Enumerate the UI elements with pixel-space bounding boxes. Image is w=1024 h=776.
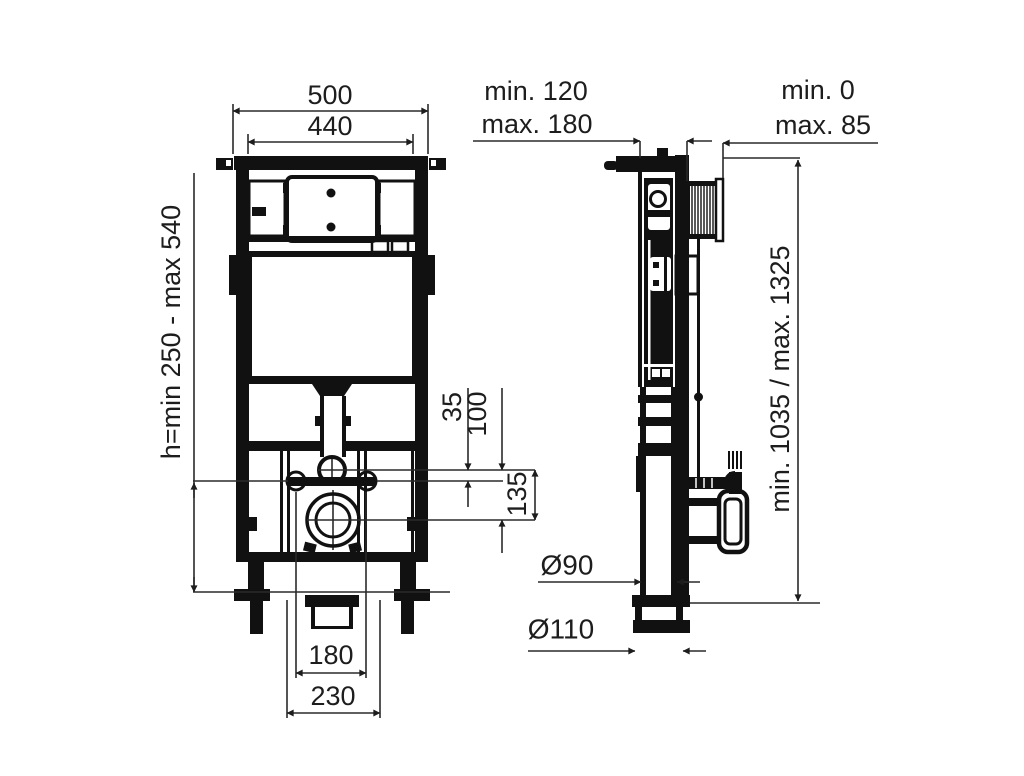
mid-band: [346, 441, 428, 451]
strut: [357, 451, 360, 552]
flush-plate: [716, 179, 723, 241]
drain-connector: [305, 595, 359, 629]
flush-pipe-wall: [320, 396, 324, 457]
rail-block: [245, 517, 257, 531]
tank-wall-left: [249, 257, 252, 377]
strut: [411, 451, 414, 552]
box-dot: [327, 223, 336, 232]
dim-flush-drain-gap: 135: [502, 470, 535, 520]
left-tab-notch: [226, 160, 231, 166]
right-foot: [394, 562, 430, 634]
box-tab: [283, 183, 289, 193]
support-rail: [697, 238, 700, 478]
dim-width-outer-label: 500: [307, 80, 352, 110]
wall-block: [689, 179, 723, 241]
drain-opening: [303, 490, 362, 553]
dim-bolt-drain-gap-label: 100: [462, 391, 492, 436]
box-dot: [327, 189, 336, 198]
valve-box: [392, 241, 408, 252]
pipe-coupling: [342, 416, 351, 426]
dim-depth-min-label: min. 120: [484, 76, 588, 106]
crossbar: [288, 477, 376, 486]
mid-band: [236, 441, 320, 451]
dim-depth-max-label: max. 180: [481, 109, 592, 139]
wall-rod: [616, 156, 676, 172]
technical-drawing-page: 500 440 min. 120 max. 180 min. 0 max. 85: [0, 0, 1024, 776]
dimensions: 500 440 min. 120 max. 180 min. 0 max. 85: [156, 75, 878, 718]
strut: [287, 451, 290, 552]
dim-outlet-dia-label: Ø110: [528, 614, 594, 645]
dim-flush-drain-gap-label: 135: [502, 471, 532, 516]
right-tab-notch: [431, 160, 436, 166]
pipe-coupling: [315, 416, 324, 426]
right-rail: [415, 170, 428, 562]
threaded-stub: [729, 451, 741, 469]
dim-tile-max-label: max. 85: [775, 110, 871, 140]
dim-tile-min-label: min. 0: [781, 75, 855, 105]
dim-bolt-spacing-label: 180: [308, 640, 353, 670]
access-box: [287, 177, 377, 241]
left-foot: [234, 562, 270, 634]
right-panel: [379, 181, 415, 236]
fixing-bolt: [689, 451, 742, 494]
valve-box: [372, 241, 388, 252]
box-tab: [375, 225, 381, 235]
technical-drawing: 500 440 min. 120 max. 180 min. 0 max. 85: [0, 0, 1024, 776]
strut: [280, 451, 283, 552]
front-view: [216, 156, 446, 634]
tank-bottom: [249, 376, 415, 396]
left-clip: [229, 255, 236, 295]
box-tab: [283, 225, 289, 235]
top-nub: [657, 148, 668, 156]
dim-bolt-height: h=min 250 - max 540: [156, 173, 194, 592]
dim-tile-offset: min. 0 max. 85: [723, 75, 878, 178]
dim-outlet-spacing-label: 230: [310, 681, 355, 711]
shelf-band: [249, 236, 415, 242]
side-view: [604, 148, 747, 633]
strut: [246, 451, 249, 552]
side-cistern: [644, 178, 673, 387]
dim-width-inner: 440: [248, 111, 413, 154]
tank-wall-right: [412, 257, 415, 377]
dim-drain-dia-label: Ø90: [541, 550, 594, 581]
tank-top-band: [249, 251, 415, 257]
dim-bolt-height-label: h=min 250 - max 540: [156, 205, 186, 459]
right-clip: [428, 255, 435, 295]
back-rail: [638, 172, 642, 387]
rail-pin: [694, 393, 703, 402]
rail-block: [407, 517, 419, 531]
flush-pipe-wall: [342, 396, 346, 457]
bottom-bar: [236, 552, 428, 562]
dim-width-inner-label: 440: [307, 111, 352, 141]
dim-frame-height-label: min. 1035 / max. 1325: [765, 245, 795, 512]
box-tab: [375, 183, 381, 193]
panel-latch: [252, 207, 266, 216]
profile-bar: [675, 155, 689, 597]
top-rail: [234, 156, 428, 170]
rod-tip: [604, 161, 618, 170]
